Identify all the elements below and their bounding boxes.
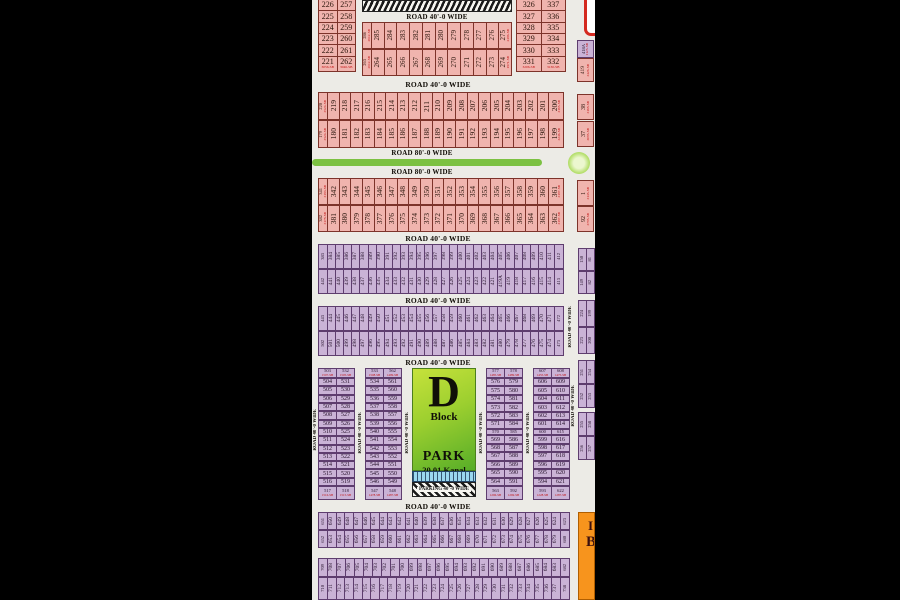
dblock-column: 6071455-SB6081475-SB60660960561060461160… [533,368,570,500]
plot-strip: 6526536546556566576586596606616626636646… [318,530,570,548]
plot-pair-row: 2213056-SB2623046-SB [318,57,356,72]
plot-number: 591 [509,479,518,485]
plot-number: 526 [341,421,350,427]
plot-number: 639 [424,517,430,525]
plot-565: 565 [486,469,505,477]
plot-number: 546 [370,479,379,485]
plot-number: 647 [355,517,361,525]
plot-number: 693 [464,563,470,571]
plot-number: 460 [459,314,465,322]
plot-number: 522 [341,454,350,460]
plot-number: 490 [418,339,424,347]
plot-number: 531 [341,379,350,385]
plot-number: 567 [491,453,500,459]
plot-strip: 5025015004994984974964954944934924914904… [318,331,564,356]
plot-number: 343 [341,186,349,197]
dblock-row: 543552 [365,453,402,461]
plot-number: 349 [411,186,419,197]
plot-number: 441 [329,277,335,285]
dblock-row: 537558 [365,403,402,411]
plot-523: 523 [336,445,355,453]
plot-number: 195 [504,128,512,139]
plot-sqft: 3145-SB [587,187,591,199]
plot-598: 598 [533,444,552,452]
plot-285: 285 [371,22,385,49]
plot-number: 534 [370,379,379,385]
plot-number: 412 [557,253,562,260]
plot-600: 600 [533,429,552,436]
plot-264: 264 [371,49,385,76]
plot-number: 708 [329,563,335,571]
dblock-row: 575580 [486,386,523,394]
plot-number: 424 [467,277,473,285]
dblock-row: 571584 [486,420,523,428]
plot-number: 390 [377,252,383,260]
plot-number: 188 [423,128,431,139]
park-label: PARK [423,449,466,465]
plot-number: 680 [563,536,568,543]
plot-586: 586 [504,435,523,443]
dblock-row: 600615 [533,429,570,436]
plot-number: 499 [345,339,351,347]
plot-590: 590 [504,469,523,477]
plot-sqft: 1489-SB [508,374,519,377]
plot-number: 624 [553,517,559,525]
plot-522: 522 [336,453,355,461]
plot-number: 619 [556,462,565,468]
plot-number: 498 [353,339,359,347]
neighbour-block-letter: I [588,518,593,534]
plot-number: 477 [523,339,529,347]
plot-number: 219 [330,100,338,111]
plot-number: 556 [388,421,397,427]
plot-588: 588 [504,452,523,460]
plot-sqft: 3524-SB [324,128,328,140]
plot-number: 637 [441,517,447,525]
plot-573: 573 [486,403,505,411]
plot-number: 569 [491,437,500,443]
plot-pair-column: 2262572252582242592232602222612213056-SB… [318,0,356,72]
plot-number: 455 [418,314,424,322]
plot-515: 515 [318,469,337,477]
plot-number: 663 [415,535,421,543]
plot-603: 603 [533,403,552,411]
plot-number: 542 [370,446,379,452]
plot-strip: 2632612-SB264265266267268269270271272273… [362,49,512,76]
plot-577: 5771485-SB [486,368,505,378]
plot-number: 472 [557,315,562,322]
dblock-row: 505530 [318,386,355,394]
plot-738: 738 [560,577,570,600]
plot-number: 273 [489,57,496,68]
plot-283: 283 [396,22,410,49]
plot-524: 524 [336,436,355,444]
plot-number: 368 [481,213,489,224]
plot-sqft: 3206-SB [523,66,535,70]
plot-number: 461 [467,314,473,322]
fragment-row: 252253 [578,384,595,408]
plot-number: 642 [398,517,404,525]
plot-number: 701 [392,563,398,571]
plot-number: 447 [353,314,359,322]
plot-number: 535 [370,387,379,393]
plot-253: 253 [586,384,595,408]
plot-number: 557 [388,412,397,418]
plot-number: 444 [329,314,335,322]
fragment-plots: 251254252253 [578,360,595,408]
plot-number: 470 [540,314,546,322]
plot-number: 648 [346,517,352,525]
plot-number: 456 [426,314,432,322]
plot-551: 551 [383,461,402,469]
plot-number: 527 [341,412,350,418]
plot-258: 258 [586,412,595,436]
road-label-text: ROAD 40'-0 WIDE [358,412,363,454]
plot-269: 269 [435,49,449,76]
plot-535: 535 [365,386,384,394]
plot-517: 5171516-SB [318,486,337,500]
plot-274: 2741971-SB [498,49,512,76]
plot-473: 473 [554,331,564,356]
plot-number: 649 [338,517,344,525]
plot-strip: 3823178-SB381380379378377376375374373372… [318,205,564,232]
plot-number: 452 [394,314,400,322]
plot-number: 616 [556,437,565,443]
road-label: ROAD 40'-0 WIDE [332,234,544,243]
dblock-row: 510525 [318,428,355,436]
plot-number: 190 [446,128,454,139]
plot-number: 628 [519,517,525,525]
viewer-black-background: D Block PARK 20.01 Kanal PARKING 40'-0 W… [0,0,900,600]
plot-number: 568 [491,445,500,451]
plot-92: 923785-SB [577,206,594,232]
fragment-row: 14982 [578,271,595,294]
plot-sqft: 3187-SB [558,185,562,197]
plot-number: 652 [321,536,326,543]
plot-number: 445 [337,314,343,322]
road-label-vertical: ROAD 40'-0 WIDE [570,368,577,443]
plot-number: 560 [388,387,397,393]
plot-number: 279 [451,30,458,41]
plot-612: 612 [551,403,570,411]
plot-number: 698 [419,563,425,571]
plot-number: 258 [588,421,593,428]
plot-266: 266 [396,49,410,76]
plot-sqft: 2612-SB [368,29,372,41]
plot-number: 434 [386,277,392,285]
plot-number: 187 [411,128,419,139]
plot-number: 446 [345,314,351,322]
plot-number: 182 [353,128,361,139]
plot-number: 391 [386,252,392,260]
plot-number: 372 [434,213,442,224]
plot-number: 500 [337,339,343,347]
plot-number: 678 [545,535,551,543]
plot-number: 271 [464,57,471,68]
plot-number: 457 [434,314,440,322]
plot-number: 469 [532,314,538,322]
road-label-vertical: ROAD 40'-0 WIDE [566,298,575,356]
plot-number: 386 [345,252,351,260]
plot-pair-row: 3313206-SB3323130-SB [516,57,566,72]
plot-number: 367 [493,213,501,224]
plot-546: 546 [365,478,384,486]
dblock-column: 5031507-SB5321505-SB50453150553050652950… [318,368,355,500]
road-label: ROAD 40'-0 WIDE [332,358,544,367]
plot-268: 268 [422,49,436,76]
plot-562: 5621499-SB [383,368,402,378]
plot-number: 689 [500,563,506,571]
plot-number: 269 [438,57,445,68]
plot-number: 575 [491,388,500,394]
plot-number: 711 [329,584,335,592]
plot-543: 543 [365,453,384,461]
plot-number: 653 [329,535,335,543]
plot-284: 284 [384,22,398,49]
plot-number: 467 [515,314,521,322]
plot-number: 621 [556,479,565,485]
plot-sqft: 3426-SB [587,64,591,76]
plot-number: 335 [547,24,559,32]
housing-scheme-block-map: D Block PARK 20.01 Kanal PARKING 40'-0 W… [312,0,595,600]
plot-number: 223 [322,35,334,43]
plot-number: 209 [446,100,454,111]
plot-570: 570 [486,429,505,436]
plot-number: 278 [464,30,471,41]
plot-418A: 418A1125-SB [577,40,594,58]
plot-541: 541 [365,436,384,444]
plot-number: 497 [361,339,367,347]
plot-number: 521 [341,462,350,468]
plot-number: 224 [322,24,334,32]
dblock-row: 536559 [365,395,402,403]
plot-555: 555 [383,428,402,436]
plot-number: 699 [410,563,416,571]
plot-sqft: 1228-SB [537,494,548,497]
parking-hatch-strip: PARKING 40'-0 WIDE [412,482,476,497]
plot-number: 358 [516,186,524,197]
plot-number: 561 [388,379,397,385]
plot-number: 618 [556,453,565,459]
road-label-text: ROAD 40'-0 WIDE [526,412,531,454]
plot-number: 716 [372,584,378,592]
block-letter: D [428,371,460,413]
plot-number: 646 [364,517,370,525]
plot-275: 2752496-SB [498,22,512,49]
fragment-row: 224199 [578,300,595,327]
plot-number: 602 [538,413,547,419]
plot-number: 694 [455,563,461,571]
plot-579: 579 [504,378,523,386]
plot-number: 270 [451,57,458,68]
plot-number: 189 [434,128,442,139]
plot-number: 184 [376,128,384,139]
plot-number: 523 [341,446,350,452]
plot-559: 559 [383,395,402,403]
plot-number: 706 [347,563,353,571]
plot-pair-column: 3263373273363283353293343303333313206-SB… [516,0,566,72]
dblock-row: 599616 [533,435,570,443]
plot-number: 285 [374,30,381,41]
plot-number: 408 [523,252,529,260]
plot-number: 657 [364,535,370,543]
dblock-header-row: 5031507-SB5321505-SB [318,368,355,378]
plot-number: 555 [388,429,397,435]
plot-568: 568 [486,444,505,452]
plot-number: 491 [410,339,416,347]
plot-602: 602 [533,412,552,420]
plot-581: 581 [504,395,523,403]
plot-number: 597 [538,453,547,459]
plot-number: 394 [410,252,416,260]
plot-number: 200 [588,337,593,344]
plot-number: 692 [473,563,479,571]
plot-number: 344 [353,186,361,197]
plot-number: 564 [491,479,500,485]
plot-number: 714 [355,584,361,592]
plot-257: 257 [586,436,595,460]
plot-number: 438 [353,277,359,285]
plot-262: 2623046-SB [337,56,357,72]
plot-number: 667 [450,535,456,543]
fragment-row: 255258 [578,412,595,436]
plot-number: 413 [557,278,562,285]
plot-596: 596 [533,461,552,469]
dblock-row: 512523 [318,445,355,453]
plot-number: 638 [433,517,439,525]
plot-number: 265 [387,57,394,68]
plot-615: 615 [551,429,570,436]
plot-number: 585 [510,430,517,435]
plot-number: 351 [434,186,442,197]
plot-number: 397 [434,252,440,260]
plot-82: 82 [586,271,595,294]
plot-553: 553 [383,445,402,453]
plot-number: 356 [493,186,501,197]
plot-272: 272 [473,49,487,76]
plot-609: 609 [551,378,570,386]
plot-number: 732 [510,584,516,592]
plot-number: 514 [323,462,332,468]
plot-number: 506 [323,396,332,402]
plot-number: 253 [588,393,593,400]
plot-number: 688 [509,563,515,571]
plot-682: 682 [560,558,570,577]
plot-number: 462 [475,314,481,322]
plot-number: 468 [523,314,529,322]
plot-592: 5921269-SB [504,486,523,500]
plot-548: 5481487-SB [383,486,402,500]
plot-number: 601 [538,421,547,427]
plot-number: 337 [547,1,559,9]
plot-619: 619 [551,461,570,469]
plot-number: 421 [491,277,497,285]
plot-number: 417 [523,277,529,285]
plot-number: 255 [580,421,585,428]
plot-number: 436 [369,277,375,285]
plot-572: 572 [486,412,505,420]
parking-label: PARKING 40'-0 WIDE [417,487,471,492]
dblock-row: 572583 [486,412,523,420]
plot-number: 687 [518,563,524,571]
road-label: ROAD 40'-0 WIDE [332,296,544,305]
plot-37: 373085-SB [577,121,594,147]
plot-number: 150 [580,256,585,263]
plot-strip: 2862612-SB285284283282281280279278277276… [362,22,512,49]
plot-554: 554 [383,436,402,444]
dblock-footer-row: 5471478-SB5481487-SB [365,486,402,500]
plot-597: 597 [533,452,552,460]
plot-270: 270 [447,49,461,76]
plot-number: 476 [532,339,538,347]
plot-number: 377 [376,213,384,224]
road-label-vertical: ROAD 40'-0 WIDE [355,380,365,485]
plot-number: 541 [370,437,379,443]
plot-413: 413 [554,269,564,294]
plot-number: 359 [527,186,535,197]
plot-number: 204 [504,100,512,111]
plot-sqft: 1505-SB [340,374,351,377]
plot-number: 475 [540,339,546,347]
plot-611: 611 [551,395,570,403]
plot-number: 381 [330,213,338,224]
plot-number: 630 [502,517,508,525]
plot-617: 617 [551,444,570,452]
road-label-vertical: ROAD 40'-0 WIDE [402,380,412,485]
plot-number: 353 [458,186,466,197]
dblock-row: 569586 [486,435,523,443]
plot-331: 3313206-SB [516,56,542,72]
dblock-header-row: 6071455-SB6081475-SB [533,368,570,378]
plot-number: 611 [556,396,565,402]
plot-569: 569 [486,435,505,443]
plot-sqft: 1478-SB [369,494,380,497]
plot-278: 278 [460,22,474,49]
plot-sqft: 1508-SB [369,374,380,377]
plot-number: 439 [345,277,351,285]
fragment-row: 15081 [578,248,595,271]
plot-549: 549 [383,478,402,486]
plot-number: 433 [394,277,400,285]
fragment-row: 251254 [578,360,595,384]
plot-number: 595 [538,470,547,476]
plot-number: 729 [484,584,490,592]
plot-number: 623 [563,518,568,525]
plot-number: 613 [556,413,565,419]
plot-number: 726 [458,584,464,592]
plot-number: 258 [340,13,352,21]
plot-number: 403 [483,252,489,260]
dblock-row: 542553 [365,445,402,453]
plot-number: 520 [341,471,350,477]
dblock-row: 568587 [486,444,523,452]
plot-number: 554 [388,437,397,443]
plot-sqft: 3187-SB [558,212,562,224]
plot-number: 345 [364,186,372,197]
plot-514: 514 [318,461,337,469]
plot-strip: 4434444454464474484494504514524534544554… [318,306,564,331]
plot-number: 662 [407,535,413,543]
plot-number: 202 [527,100,535,111]
plot-strip: 2203524-SB219218217216215214213212211210… [318,92,564,120]
plot-number: 651 [321,518,326,525]
plot-number: 415 [540,277,546,285]
plot-number: 480 [499,339,505,347]
plot-number: 551 [388,462,397,468]
plot-number: 474 [548,339,554,347]
plot-number: 281 [425,30,432,41]
plot-sqft: 3046-SB [340,66,352,70]
